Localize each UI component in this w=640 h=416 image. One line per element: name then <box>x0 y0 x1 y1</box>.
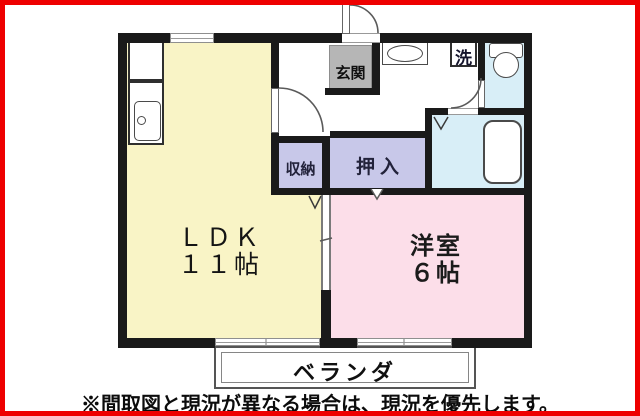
ldk-room-label: ＬＤＫ １１帖 <box>140 225 300 279</box>
wall-bottom-mid <box>320 338 357 348</box>
entrance-label: 玄関 <box>329 62 372 83</box>
wall-bottom-left <box>118 338 215 348</box>
wall-ldk-western-lower <box>321 288 331 338</box>
wall-closet-bath <box>425 108 432 195</box>
window-top <box>170 33 214 43</box>
wall-toilet-left <box>478 33 485 80</box>
balcony-label: ベランダ <box>221 355 469 387</box>
floorplan: ＬＤＫ １１帖 洋室 ６帖 収納 押入 玄関 洗 ベランダ ※間取図と現況が異な… <box>0 0 640 416</box>
bathroom-door-sill <box>448 108 478 115</box>
window-balcony-western <box>357 338 452 346</box>
laundry-label: 洗 <box>450 44 477 69</box>
front-door-leaf <box>342 3 350 34</box>
toilet-icon <box>493 52 519 78</box>
western-room-name: 洋室 <box>377 233 495 260</box>
faucet-icon <box>137 116 146 125</box>
ldk-room-name: ＬＤＫ <box>140 225 300 252</box>
western-room-size: ６帖 <box>377 260 495 287</box>
kitchen-counter <box>128 41 164 81</box>
front-door-sill <box>342 33 380 43</box>
wall-above-bath <box>425 108 532 115</box>
disclaimer-text: ※間取図と現況が異なる場合は、現況を優先します。 <box>0 388 640 416</box>
western-room-label: 洋室 ６帖 <box>377 233 495 287</box>
wall-right-of-entrance <box>372 43 380 95</box>
washbasin-icon <box>387 45 423 62</box>
bathtub-icon <box>483 120 522 184</box>
window-balcony-ldk <box>215 338 320 346</box>
ldk-door-leaf <box>271 88 279 133</box>
wall-below-closets <box>271 188 532 195</box>
ldk-room-size: １１帖 <box>140 252 300 279</box>
toilet-door-leaf <box>478 80 485 108</box>
wall-storage-closet <box>322 136 330 195</box>
front-door-arc-icon <box>350 5 378 33</box>
wall-above-closet <box>330 131 432 138</box>
wall-left <box>118 33 127 348</box>
wall-top-right <box>380 33 532 43</box>
storage-label: 収納 <box>279 158 322 179</box>
closet-label: 押入 <box>330 152 425 179</box>
wall-bottom-right <box>452 338 532 348</box>
wall-ldk-hall-upper <box>271 43 279 88</box>
sliding-door-ldk-western <box>321 195 331 290</box>
wall-top-mid <box>214 33 342 43</box>
